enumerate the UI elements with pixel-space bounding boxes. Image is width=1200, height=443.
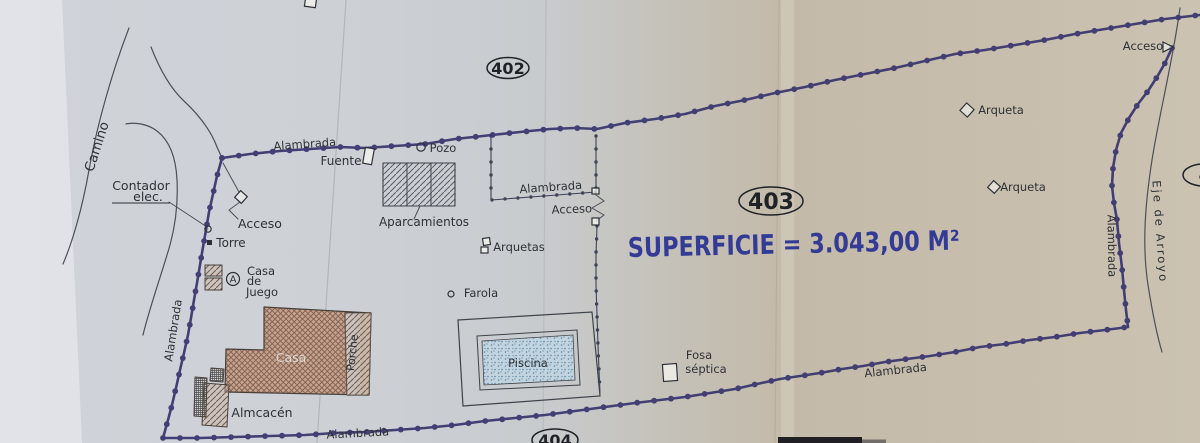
label-acceso-inner: Acceso (551, 201, 592, 216)
label-aparcamientos: Aparcamientos (379, 215, 469, 229)
label-contador-2: elec. (133, 189, 163, 204)
label-casa-label: Casa (276, 350, 307, 365)
almacen-annex (194, 377, 207, 417)
casa-step (210, 368, 224, 382)
parcel-403-label: 403 (748, 190, 794, 215)
fosa-septica-box (662, 364, 677, 382)
parcel-402-label: 402 (491, 59, 524, 78)
label-alambrada-east: Alambrada (1104, 214, 1119, 277)
gate-post-1 (592, 188, 599, 194)
label-arquetas: Arquetas (493, 240, 545, 254)
fuente-box (363, 147, 375, 164)
label-almacen: Almcacén (231, 405, 292, 420)
parcel-404-label: 404 (538, 431, 571, 443)
label-farola: Farola (464, 286, 498, 300)
label-arqueta-e: Arqueta (1000, 180, 1046, 194)
label-acceso-west: Acceso (238, 216, 282, 231)
casa-de-juego-box-1 (205, 265, 222, 276)
scan-shadow-fade (860, 440, 886, 443)
gate-post-2 (592, 218, 599, 225)
scan-shadow-bar (778, 437, 862, 443)
site-plan-svg: A4024034044CaminoContadorelec.AccesoTorr… (0, 0, 1200, 443)
label-casa-de-juego-3: Juego (245, 285, 278, 299)
label-torre: Torre (215, 236, 245, 250)
svg-text:A: A (230, 275, 237, 286)
label-arqueta-ne: Arqueta (978, 103, 1024, 117)
label-fosa-2: séptica (685, 362, 726, 376)
casa-de-juego-box-2 (205, 278, 222, 290)
arqueta-box-2 (481, 247, 488, 253)
label-fuente: Fuente (321, 154, 362, 168)
label-piscina: Piscina (508, 356, 548, 370)
label-acceso-ne: Acceso (1123, 39, 1163, 53)
arqueta-box-1 (483, 238, 491, 246)
scanned-site-plan: A4024034044CaminoContadorelec.AccesoTorr… (0, 0, 1200, 443)
label-fosa-1: Fosa (686, 348, 712, 362)
torre-square (207, 240, 212, 245)
label-pozo: Pozo (430, 141, 457, 155)
aparcamientos-building (383, 163, 455, 206)
top-edge-box (304, 0, 316, 8)
